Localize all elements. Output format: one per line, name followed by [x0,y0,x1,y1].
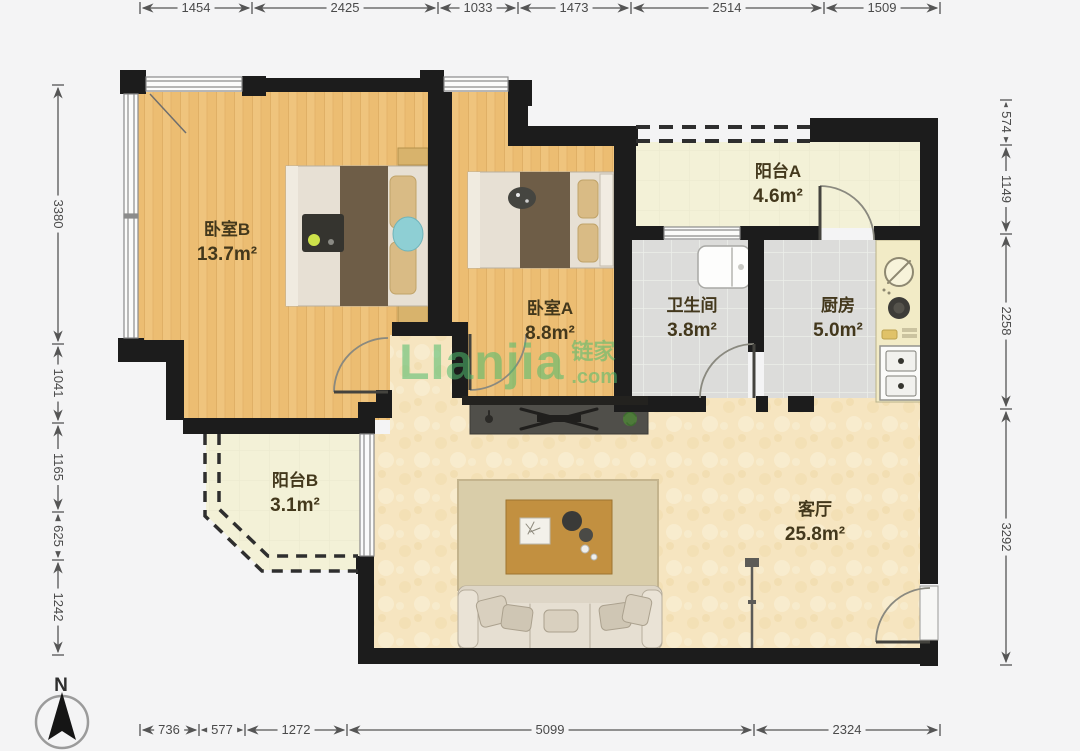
dim-top-4: 2514 [709,1,746,15]
dim-left-2: 1165 [51,449,65,485]
bedroom-b-bed [286,148,428,323]
room-label-bedroom-b: 卧室B 13.7m² [197,218,257,268]
room-label-balcony-a: 阳台A 4.6m² [753,160,803,210]
dim-top-3: 1473 [556,1,593,15]
dim-right-3: 3292 [999,519,1013,556]
dim-left-1: 1041 [51,365,65,402]
dim-top-5: 1509 [864,1,901,15]
dim-bottom-4: 2324 [829,723,866,737]
room-name: 阳台B [270,469,320,493]
dim-top-0: 1454 [178,1,215,15]
dim-bottom-3: 5099 [532,723,569,737]
dim-left-4: 1242 [51,589,65,626]
north-label: N [54,675,68,697]
sofa [458,586,662,650]
dim-left-0: 3380 [51,196,65,233]
dim-chain-top [140,2,940,14]
room-name: 客厅 [785,498,845,522]
room-area: 25.8m² [785,522,845,549]
toilet [698,246,750,288]
room-area: 4.6m² [753,184,803,211]
room-area: 13.7m² [197,242,257,269]
dim-right-1: 1149 [999,171,1013,207]
north-compass [36,692,88,748]
room-name: 卧室B [197,218,257,242]
room-label-balcony-b: 阳台B 3.1m² [270,469,320,519]
bedroom-a-bay-window [444,77,508,91]
coffee-table [506,500,612,574]
dim-bottom-1: 577 [207,723,237,737]
dim-right-0: 574 [999,107,1013,137]
floorplan-page: 卧室B 13.7m² 卧室A 8.8m² 阳台A 4.6m² 卫生间 3.8m²… [0,0,1080,751]
room-area: 3.1m² [270,493,320,520]
bedroom-b-left-window [124,94,138,338]
balcony-a-inner-window [664,227,740,239]
room-label-kitchen: 厨房 5.0m² [813,294,863,344]
dim-top-2: 1033 [460,1,497,15]
room-label-living-room: 客厅 25.8m² [785,498,845,548]
plant-icon [623,412,637,426]
room-label-bathroom: 卫生间 3.8m² [667,294,718,344]
room-area: 5.0m² [813,318,863,345]
bedroom-a-bed [468,172,614,268]
room-area: 3.8m² [667,318,718,345]
room-label-bedroom-a: 卧室A 8.8m² [525,297,575,347]
dim-top-1: 2425 [327,1,364,15]
dim-bottom-2: 1272 [278,723,315,737]
floorplan-drawing [0,0,1080,751]
room-name: 卫生间 [667,294,718,318]
room-area: 8.8m² [525,321,575,348]
kitchen-counter [876,240,922,402]
entry-opening [920,586,938,640]
dim-bottom-0: 736 [154,723,184,737]
dim-right-2: 2258 [999,303,1013,340]
balcony-b-inner-window [360,434,374,556]
room-name: 厨房 [813,294,863,318]
room-name: 卧室A [525,297,575,321]
room-name: 阳台A [753,160,803,184]
dim-left-3: 625 [51,521,65,551]
